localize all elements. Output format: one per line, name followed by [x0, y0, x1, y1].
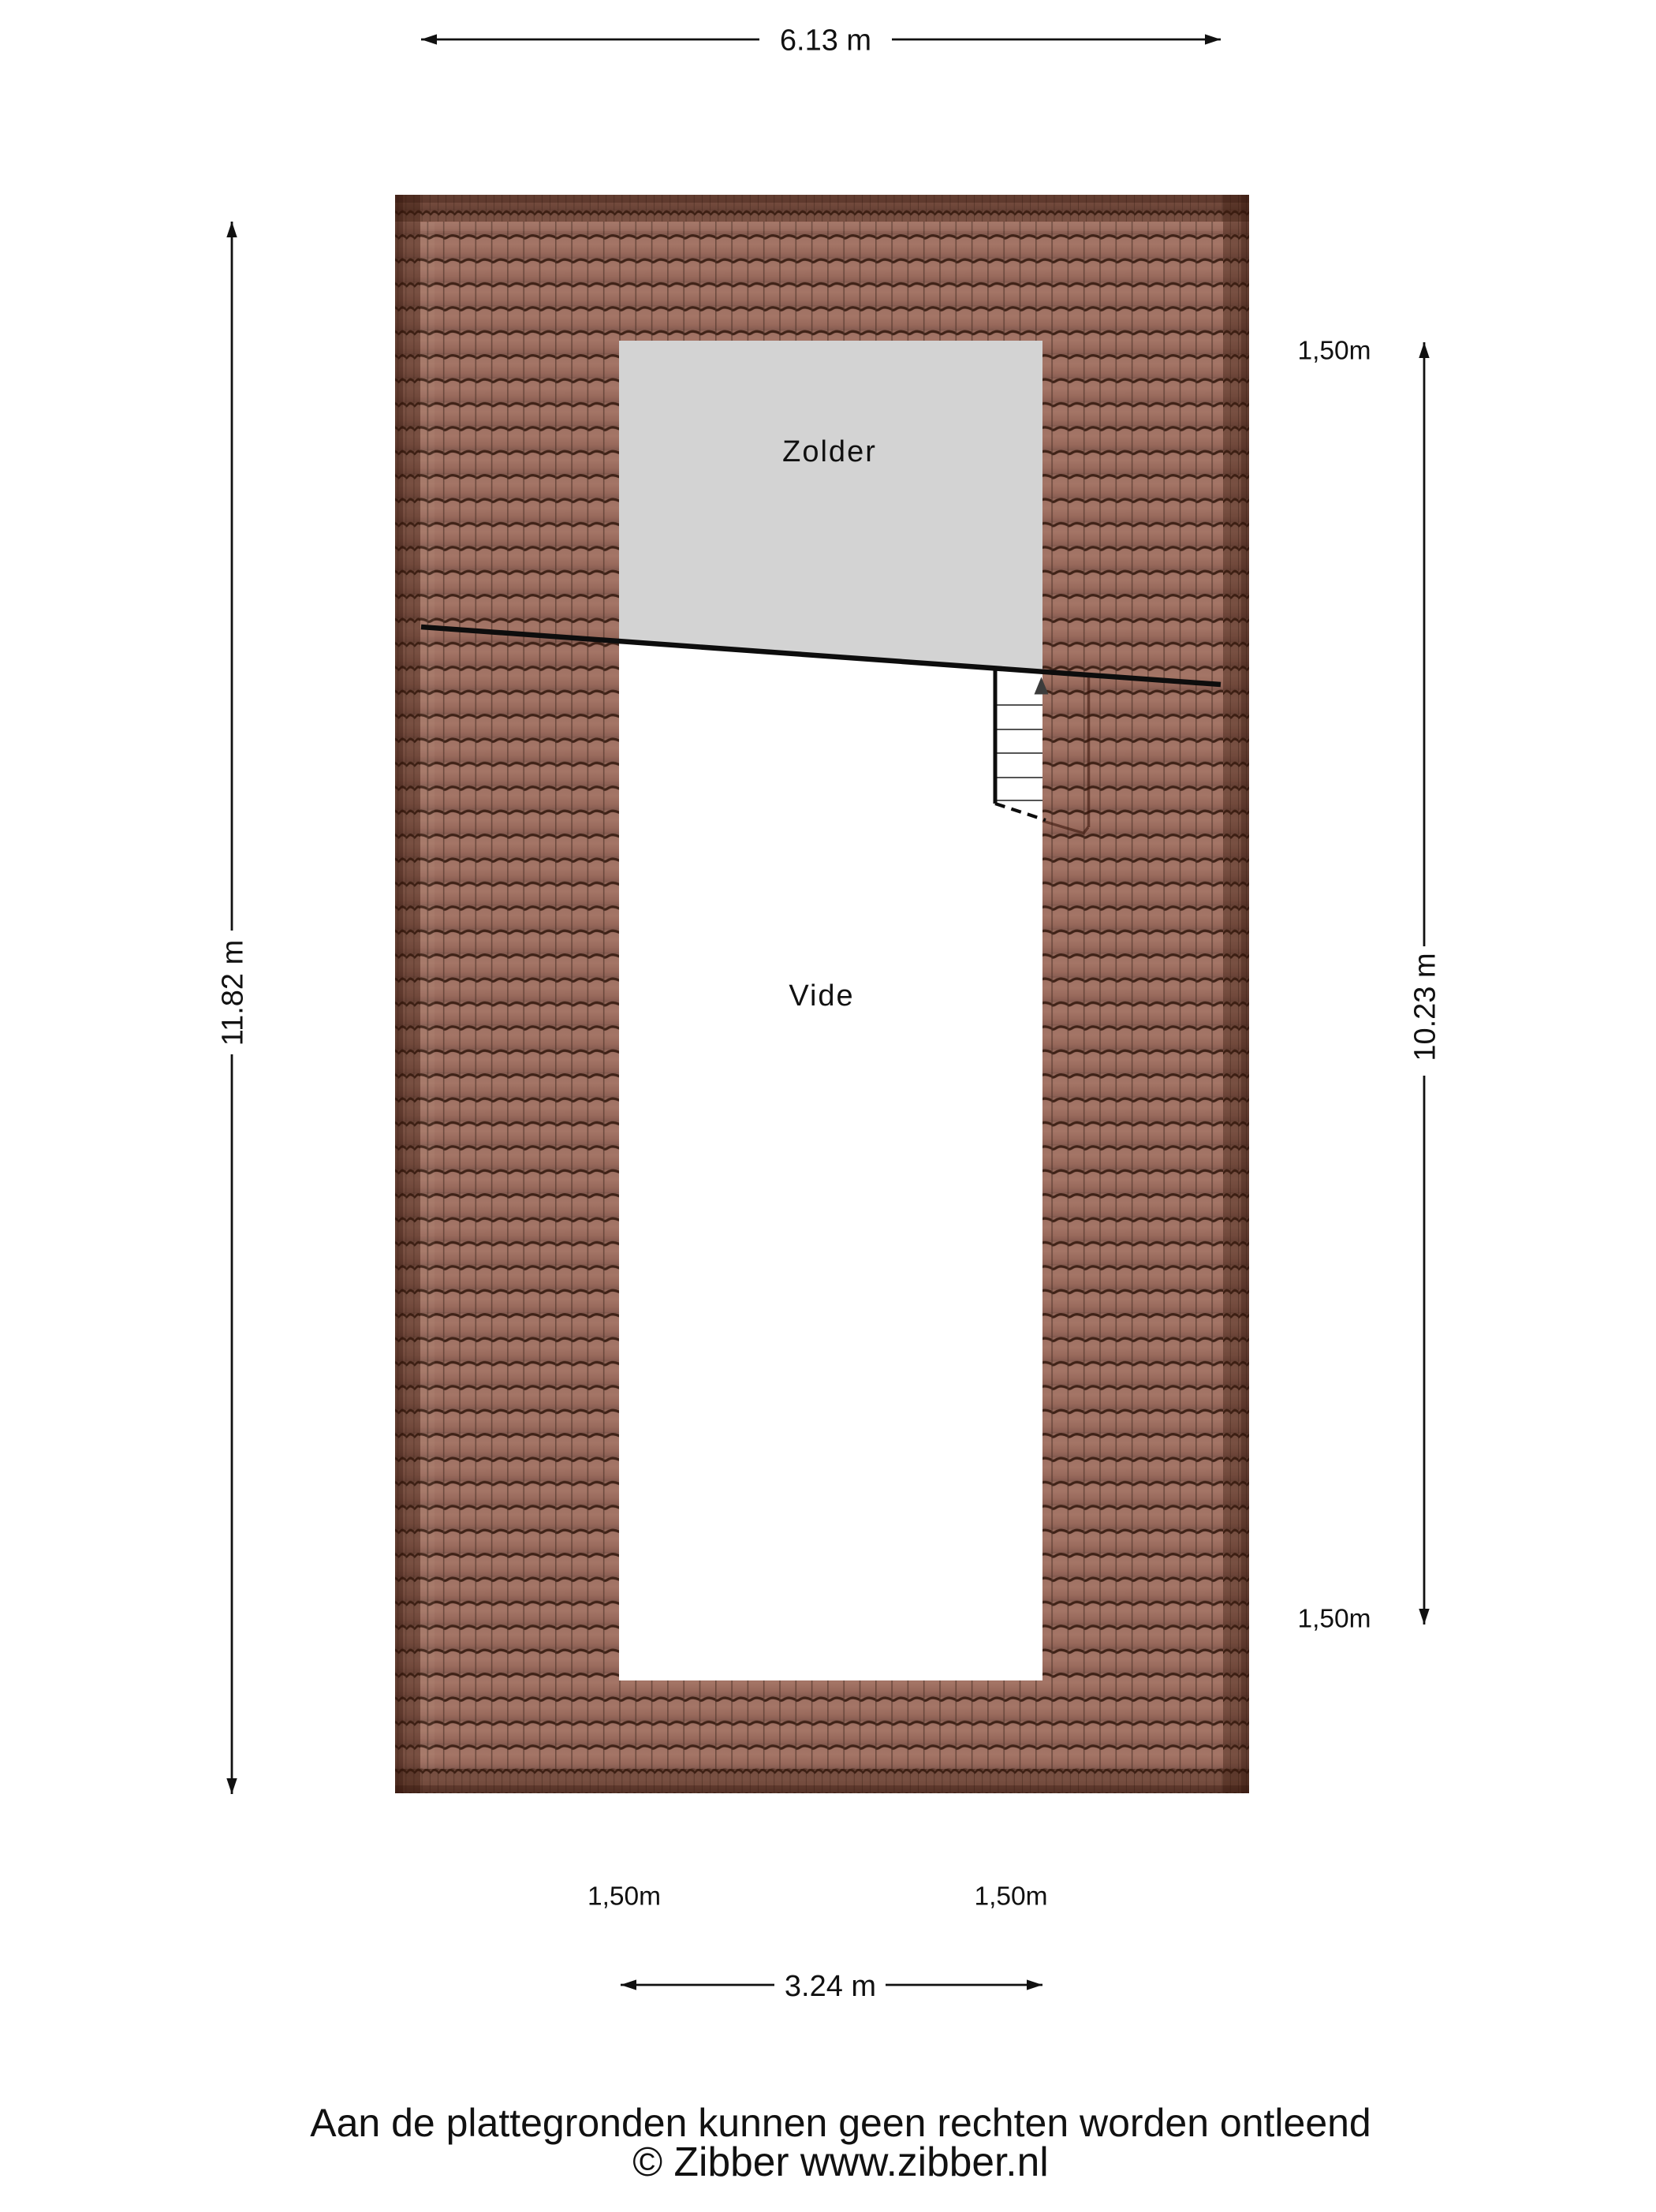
svg-text:1,50m: 1,50m [1297, 1605, 1371, 1634]
svg-text:11.82 m: 11.82 m [217, 940, 250, 1046]
svg-text:© Zibber www.zibber.nl: © Zibber www.zibber.nl [632, 2139, 1048, 2184]
svg-text:1,50m: 1,50m [974, 1882, 1047, 1912]
svg-text:6.13 m: 6.13 m [780, 24, 871, 58]
svg-text:1,50m: 1,50m [1297, 337, 1371, 366]
svg-text:Zolder: Zolder [782, 435, 877, 468]
svg-text:Vide: Vide [789, 979, 854, 1013]
svg-text:3.24 m: 3.24 m [785, 1970, 876, 2003]
svg-text:1,50m: 1,50m [587, 1882, 661, 1912]
svg-text:10.23 m: 10.23 m [1409, 953, 1442, 1061]
